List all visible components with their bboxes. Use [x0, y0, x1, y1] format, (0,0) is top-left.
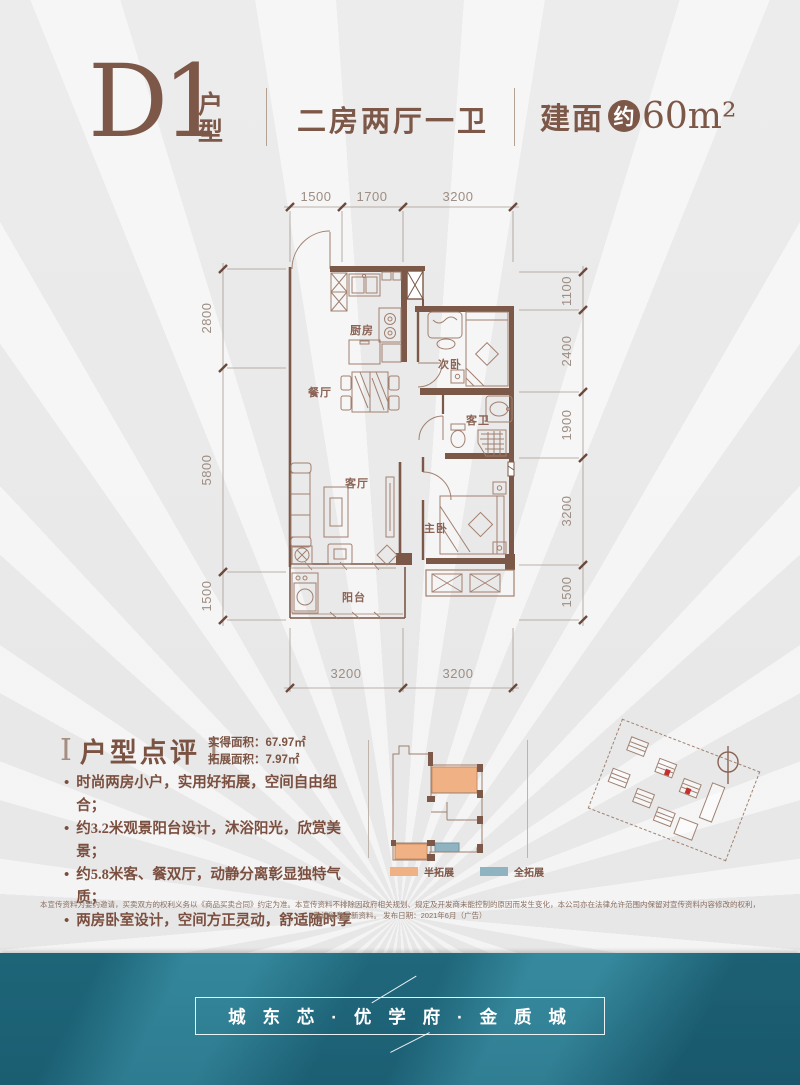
area-statement: 建面 约 60m²	[540, 92, 736, 140]
expansion-legend: 半拓展 全拓展	[390, 864, 544, 879]
bullet-text: 约3.2米观景阳台设计，沐浴阳光，欣赏美景；	[76, 818, 364, 864]
slogan-box: 城 东 芯 · 优 学 府 · 金 质 城	[195, 997, 605, 1035]
bullet-text: 时尚两房小户，实用好拓展，空间自由组合；	[76, 772, 364, 818]
full-expand-swatch	[480, 867, 508, 876]
half-expand-swatch	[390, 867, 418, 876]
decorative-slash	[390, 1032, 430, 1053]
room-label-kitchen: 厨房	[350, 323, 374, 337]
area-prefix: 建面	[540, 94, 604, 138]
bullet-dot: •	[64, 818, 69, 864]
building-icon	[608, 768, 631, 789]
dim-left-1: 2800	[199, 303, 214, 334]
building-icon	[626, 736, 649, 757]
section-divider-2	[527, 740, 528, 858]
compass-icon	[710, 742, 750, 790]
floor-plan: 1500 1700 3200 2800 5800 1500 1100 2400 …	[190, 180, 600, 705]
dim-top-3: 3200	[443, 189, 474, 204]
dim-bottom-2: 3200	[443, 666, 474, 681]
room-label-master-bedroom: 主卧	[424, 521, 448, 535]
section-divider-1	[368, 740, 369, 858]
review-title: Ⅰ 户型点评 Ⅰ	[60, 731, 220, 770]
layout-label: 二房两厅一卫	[288, 98, 498, 140]
dim-right-3: 1900	[559, 410, 574, 441]
half-expand-label: 半拓展	[424, 864, 454, 879]
dim-right-4: 3200	[559, 496, 574, 527]
review-bullet-2: • 约3.2米观景阳台设计，沐浴阳光，欣赏美景；	[64, 818, 364, 864]
dim-left-3: 1500	[199, 581, 214, 612]
dim-bottom-1: 3200	[331, 666, 362, 681]
disclaimer-text: 本宣传资料为要约邀请，买卖双方的权利义务以《商品买卖合同》约定为准。本宣传资料不…	[40, 899, 760, 921]
building-icon	[632, 788, 655, 809]
area-approx-badge: 约	[608, 100, 640, 132]
header-divider-2	[514, 88, 515, 146]
dim-right-5: 1500	[559, 577, 574, 608]
full-expand-area-bay	[435, 843, 459, 852]
half-expand-area-bedroom	[432, 767, 477, 793]
room-label-guest-bath: 客卫	[465, 413, 490, 427]
actual-area: 实得面积：67.97㎡	[208, 735, 306, 752]
review-bullet-1: • 时尚两房小户，实用好拓展，空间自由组合；	[64, 772, 364, 818]
area-value: 60m²	[642, 96, 736, 137]
room-label-second-bedroom: 次卧	[438, 357, 462, 371]
dim-right-2: 2400	[559, 336, 574, 367]
half-expand-area-balcony	[395, 844, 427, 859]
dim-top-1: 1500	[301, 189, 332, 204]
room-label-living: 客厅	[344, 476, 369, 490]
area-info: 实得面积：67.97㎡ 拓展面积：7.97㎡	[208, 735, 306, 769]
full-expand-label: 全拓展	[514, 864, 544, 879]
bottom-banner: 城 东 芯 · 优 学 府 · 金 质 城	[0, 953, 800, 1085]
expansion-mini-plan	[385, 740, 510, 866]
room-label-dining: 餐厅	[307, 385, 332, 399]
project-slogan: 城 东 芯 · 优 学 府 · 金 质 城	[228, 1004, 572, 1029]
bullet-dot: •	[64, 772, 69, 818]
left-bracket-ornament: Ⅰ	[60, 734, 72, 768]
plan-code-suffix: 户型	[198, 92, 224, 146]
dim-left-2: 5800	[199, 455, 214, 486]
room-label-balcony: 阳台	[342, 590, 366, 604]
amenity-icon	[673, 817, 698, 841]
header-divider-1	[266, 88, 267, 146]
dim-top-2: 1700	[357, 189, 388, 204]
expanded-area: 拓展面积：7.97㎡	[208, 752, 306, 769]
furniture	[291, 272, 512, 619]
building-icon	[653, 806, 676, 827]
dim-right-1: 1100	[559, 276, 574, 306]
review-title-text: 户型点评	[80, 731, 200, 770]
dimension-labels: 1500 1700 3200 2800 5800 1500 1100 2400 …	[199, 189, 574, 681]
